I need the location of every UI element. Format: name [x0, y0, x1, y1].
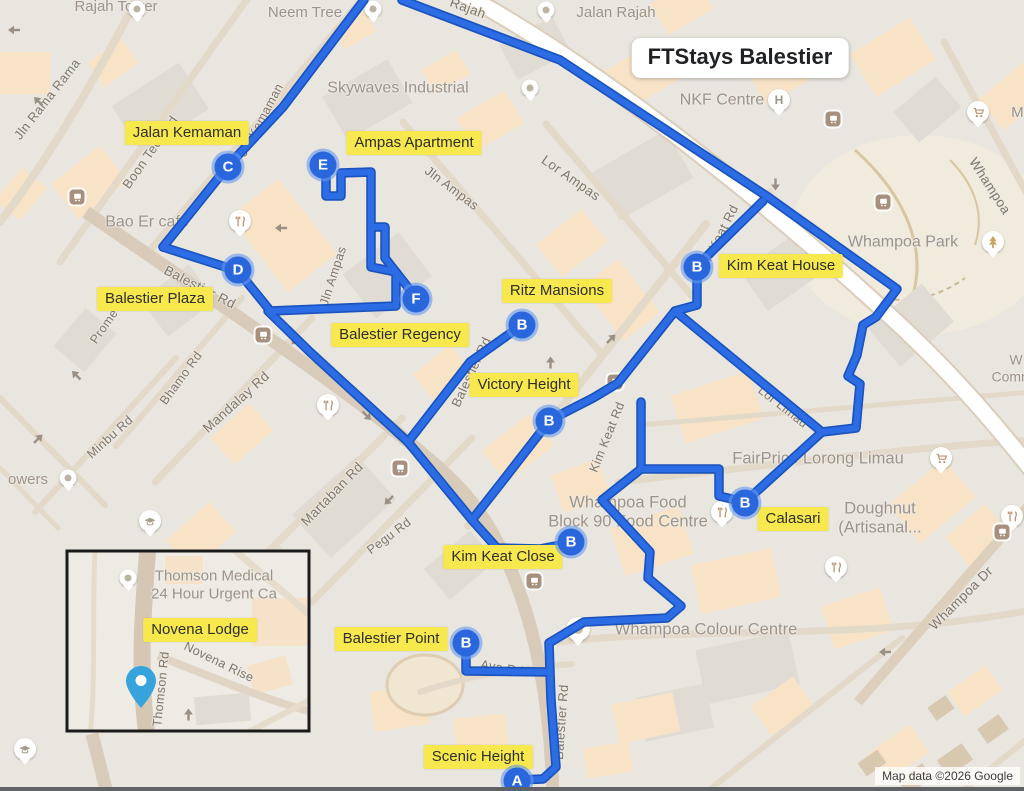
marker-b-victory-height[interactable]: B	[536, 408, 563, 435]
property-label-scenic-height[interactable]: Scenic Height	[424, 745, 533, 769]
property-label-kim-keat-close[interactable]: Kim Keat Close	[443, 545, 562, 569]
marker-b-calasari[interactable]: B	[732, 490, 759, 517]
route-calasari-connector	[641, 402, 745, 502]
marker-b-ritz-mansions[interactable]: B	[509, 312, 536, 339]
property-label-jalan-kemaman[interactable]: Jalan Kemaman	[125, 121, 249, 145]
property-label-ampas-apartment[interactable]: Ampas Apartment	[346, 131, 481, 155]
property-label-balestier-plaza[interactable]: Balestier Plaza	[97, 287, 213, 311]
property-label-kim-keat-house[interactable]: Kim Keat House	[719, 254, 843, 278]
route-calasari-connector	[641, 402, 745, 502]
marker-b-balestier-point[interactable]: B	[453, 630, 480, 657]
property-label-novena-lodge[interactable]: Novena Lodge	[143, 618, 257, 642]
route-ritz-loop	[408, 325, 571, 549]
map-canvas[interactable]: Jln Rama RamaBoon Teck RdJln KemamanRaja…	[0, 0, 1024, 791]
property-label-balestier-point[interactable]: Balestier Point	[335, 627, 448, 651]
property-label-victory-height[interactable]: Victory Height	[469, 373, 578, 397]
bottom-edge-bar	[0, 787, 1024, 791]
marker-b-kim-keat-close[interactable]: B	[558, 529, 585, 556]
map-title: FTStays Balestier	[632, 38, 849, 78]
marker-c-jalan-kemaman[interactable]: C	[215, 154, 242, 181]
marker-e-ampas-apartment[interactable]: E	[310, 152, 337, 179]
route-whampoa-colour-a	[517, 469, 681, 780]
property-label-ritz-mansions[interactable]: Ritz Mansions	[502, 279, 612, 303]
property-label-balestier-regency[interactable]: Balestier Regency	[331, 323, 469, 347]
marker-d-balestier-plaza[interactable]: D	[225, 257, 252, 284]
route-lor-limau	[675, 311, 822, 432]
route-ritz-loop	[408, 325, 571, 549]
property-label-calasari[interactable]: Calasari	[757, 507, 828, 531]
marker-b-kim-keat-house[interactable]: B	[684, 254, 711, 281]
marker-f-balestier-regency[interactable]: F	[403, 286, 430, 313]
